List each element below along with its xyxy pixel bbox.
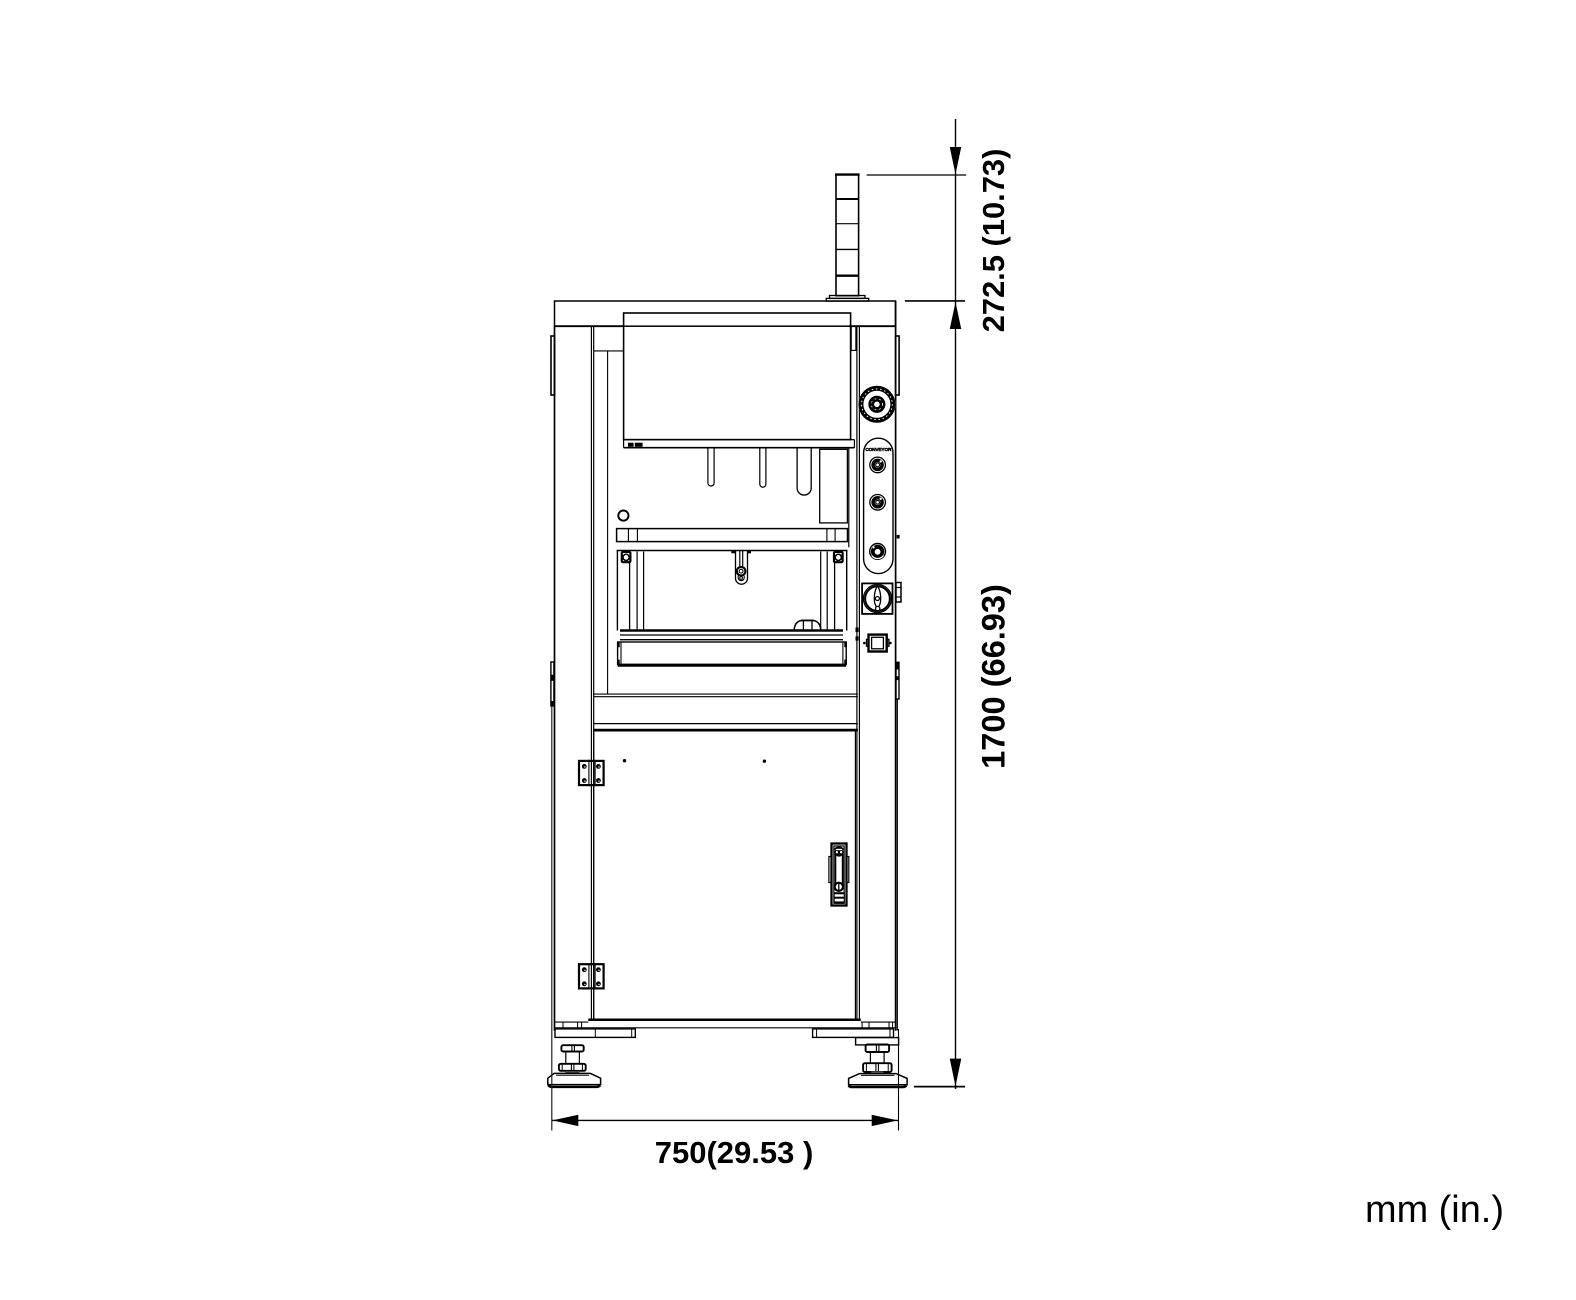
svg-text:750(29.53 ): 750(29.53 ) [655, 1135, 814, 1170]
svg-text:CONVEYOR: CONVEYOR [865, 447, 892, 453]
svg-text:272.5 (10.73): 272.5 (10.73) [976, 149, 1011, 333]
svg-text:1700 (66.93): 1700 (66.93) [975, 584, 1012, 769]
svg-text:mm (in.): mm (in.) [1365, 1189, 1504, 1231]
